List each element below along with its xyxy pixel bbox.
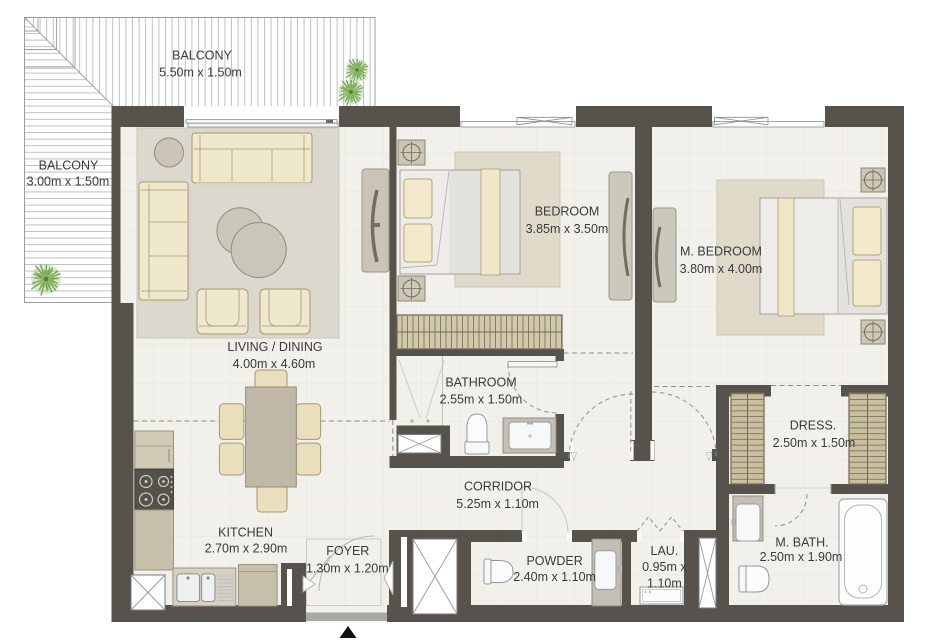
svg-text:3.80m x 4.00m: 3.80m x 4.00m bbox=[680, 262, 763, 276]
svg-text:2.40m x 1.10m: 2.40m x 1.10m bbox=[513, 570, 596, 584]
svg-text:BALCONY: BALCONY bbox=[39, 159, 99, 173]
svg-text:BEDROOM: BEDROOM bbox=[535, 205, 600, 219]
svg-text:3.85m x 3.50m: 3.85m x 3.50m bbox=[526, 222, 609, 236]
svg-text:5.50m x 1.50m: 5.50m x 1.50m bbox=[159, 66, 242, 80]
svg-text:CORRIDOR: CORRIDOR bbox=[464, 480, 532, 494]
svg-text:3.00m x 1.50m: 3.00m x 1.50m bbox=[27, 175, 110, 189]
svg-text:M. BEDROOM: M. BEDROOM bbox=[680, 245, 762, 259]
svg-text:BATHROOM: BATHROOM bbox=[445, 376, 516, 390]
svg-text:LAU.: LAU. bbox=[651, 544, 679, 558]
svg-text:POWDER: POWDER bbox=[526, 554, 582, 568]
svg-text:2.55m x 1.50m: 2.55m x 1.50m bbox=[440, 393, 523, 407]
svg-text:KITCHEN: KITCHEN bbox=[218, 526, 273, 540]
svg-text:FOYER: FOYER bbox=[326, 544, 369, 558]
svg-text:BALCONY: BALCONY bbox=[172, 49, 232, 63]
svg-text:LIVING / DINING: LIVING / DINING bbox=[227, 340, 322, 354]
svg-text:M. BATH.: M. BATH. bbox=[775, 536, 828, 550]
svg-text:2.70m x 2.90m: 2.70m x 2.90m bbox=[205, 542, 288, 556]
svg-text:2.50m x 1.90m: 2.50m x 1.90m bbox=[760, 550, 843, 564]
svg-text:DRESS.: DRESS. bbox=[790, 419, 837, 433]
svg-text:5.25m x 1.10m: 5.25m x 1.10m bbox=[456, 497, 539, 511]
svg-text:1.10m: 1.10m bbox=[647, 577, 682, 591]
svg-text:2.50m x 1.50m: 2.50m x 1.50m bbox=[773, 436, 856, 450]
svg-text:1.30m x 1.20m: 1.30m x 1.20m bbox=[306, 561, 389, 575]
svg-text:4.00m x 4.60m: 4.00m x 4.60m bbox=[233, 357, 316, 371]
svg-text:0.95m x: 0.95m x bbox=[642, 560, 687, 574]
